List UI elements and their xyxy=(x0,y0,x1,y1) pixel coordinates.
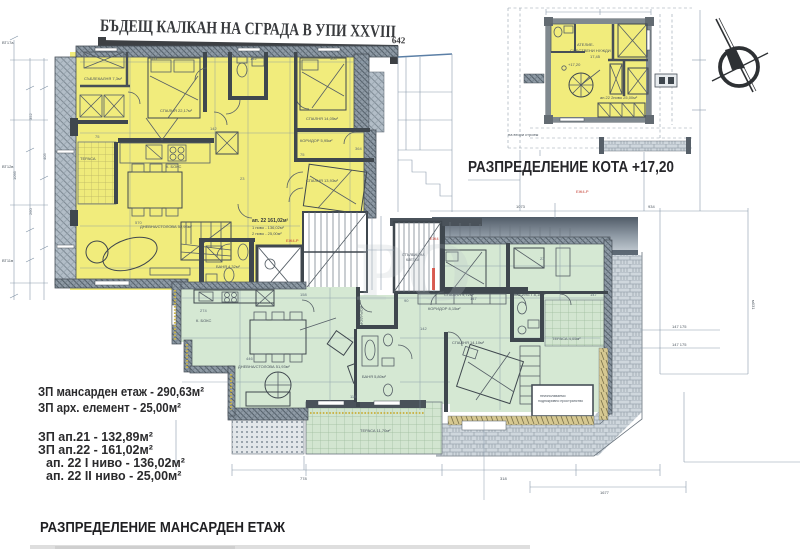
svg-text:75: 75 xyxy=(95,134,100,139)
svg-text:на втори строеж: на втори строеж xyxy=(508,132,539,137)
svg-text:РАЗПРЕДЕЛЕНИЕ МАНСАРДЕН ЕТАЖ: РАЗПРЕДЕЛЕНИЕ МАНСАРДЕН ЕТАЖ xyxy=(40,520,286,536)
svg-text:К. БОКС: К. БОКС xyxy=(196,318,212,323)
svg-text:ТЕРАСА 4,05м²: ТЕРАСА 4,05м² xyxy=(552,336,581,341)
svg-text:142: 142 xyxy=(250,56,257,61)
svg-text:142: 142 xyxy=(420,326,427,331)
svg-text:ап. 22 161,02м²: ап. 22 161,02м² xyxy=(252,218,289,224)
svg-text:ЕЖ4-Р: ЕЖ4-Р xyxy=(576,189,589,194)
svg-text:ДНЕВНА/СТОЛОВА 52,93м²: ДНЕВНА/СТОЛОВА 52,93м² xyxy=(140,224,192,229)
svg-text:СПАЛНЯ 14,05м²: СПАЛНЯ 14,05м² xyxy=(306,116,339,121)
svg-text:1095: 1095 xyxy=(12,170,17,180)
svg-text:СПАЛНЯ 14,10м²: СПАЛНЯ 14,10м² xyxy=(452,340,485,345)
svg-text:СПАЛНЯ 22,17м²: СПАЛНЯ 22,17м² xyxy=(160,108,193,113)
svg-text:ВТ12в: ВТ12в xyxy=(2,164,13,169)
svg-text:642: 642 xyxy=(392,35,406,45)
svg-text:подпокривно пространство: подпокривно пространство xyxy=(538,399,583,403)
svg-text:СПАЛНЯ 13,93м²: СПАЛНЯ 13,93м² xyxy=(306,178,339,183)
svg-text:147: 147 xyxy=(590,292,597,297)
svg-text:АТЕЛИЕ-: АТЕЛИЕ- xyxy=(577,42,595,47)
svg-text:17,45: 17,45 xyxy=(590,54,601,59)
svg-text:147 175: 147 175 xyxy=(672,342,687,347)
svg-text:К. БОКС: К. БОКС xyxy=(166,164,182,169)
svg-text:ЗП мансарден етаж - 290,63м²: ЗП мансарден етаж - 290,63м² xyxy=(38,385,204,399)
svg-text:364: 364 xyxy=(355,146,362,151)
svg-text:778: 778 xyxy=(300,476,307,481)
svg-text:934: 934 xyxy=(648,204,655,209)
svg-text:1073: 1073 xyxy=(516,204,526,209)
svg-text:142: 142 xyxy=(210,126,217,131)
svg-text:ап.22 2ниво 25,00м²: ап.22 2ниво 25,00м² xyxy=(600,95,638,100)
svg-text:158: 158 xyxy=(300,292,307,297)
svg-text:БАНЯ 4,32м²: БАНЯ 4,32м² xyxy=(216,264,241,269)
svg-text:ЗП ап.22 - 161,02м²: ЗП ап.22 - 161,02м² xyxy=(38,443,153,457)
svg-text:570: 570 xyxy=(135,220,142,225)
svg-text:ЗП ап.21 - 132,89м²: ЗП ап.21 - 132,89м² xyxy=(38,430,153,444)
svg-text:274: 274 xyxy=(200,308,207,313)
svg-text:ВТ17а: ВТ17а xyxy=(2,40,14,45)
svg-text:1 ниво - 136,02м²: 1 ниво - 136,02м² xyxy=(252,225,285,230)
svg-text:ЗП арх. елемент - 25,00м²: ЗП арх. елемент - 25,00м² xyxy=(38,401,181,415)
svg-text:РАЗПРЕДЕЛЕНИЕ КОТА +17,20: РАЗПРЕДЕЛЕНИЕ КОТА +17,20 xyxy=(468,159,674,176)
svg-text:405: 405 xyxy=(42,153,47,160)
svg-text:352: 352 xyxy=(28,113,33,120)
svg-text:ап. 22 II ниво - 25,00м²: ап. 22 II ниво - 25,00м² xyxy=(46,469,181,483)
svg-text:ЕЖ4-Р: ЕЖ4-Р xyxy=(286,238,299,243)
svg-text:364: 364 xyxy=(330,56,337,61)
svg-text:СЪБЛЕКАЛНЯ 7,3м²: СЪБЛЕКАЛНЯ 7,3м² xyxy=(84,76,123,81)
svg-text:КОРИДОР 5,95м²: КОРИДОР 5,95м² xyxy=(300,138,333,143)
svg-text:БАНЯ 5,80м²: БАНЯ 5,80м² xyxy=(362,374,387,379)
svg-text:неизползваемо: неизползваемо xyxy=(540,394,566,398)
svg-text:75: 75 xyxy=(300,152,305,157)
svg-text:+17,20: +17,20 xyxy=(568,62,581,67)
svg-text:ап. 22 I ниво - 136,02м²: ап. 22 I ниво - 136,02м² xyxy=(46,456,185,470)
svg-text:СОБСТВЕНИ НУЖДИ: СОБСТВЕНИ НУЖДИ xyxy=(570,48,611,53)
svg-text:ТЕРАСА: ТЕРАСА xyxy=(80,156,96,161)
svg-text:23: 23 xyxy=(540,256,545,261)
svg-text:РО: РО xyxy=(355,225,473,319)
svg-text:2 ниво - 25,00м²: 2 ниво - 25,00м² xyxy=(252,231,282,236)
svg-text:118: 118 xyxy=(350,394,357,399)
svg-text:446: 446 xyxy=(246,356,253,361)
svg-text:ТЕРАСА 11,70м²: ТЕРАСА 11,70м² xyxy=(360,428,391,433)
svg-text:318: 318 xyxy=(500,476,507,481)
svg-text:ВТ11в: ВТ11в xyxy=(2,258,13,263)
svg-text:260: 260 xyxy=(28,208,33,215)
svg-text:147 175: 147 175 xyxy=(672,324,687,329)
svg-text:405: 405 xyxy=(150,56,157,61)
svg-text:23: 23 xyxy=(240,176,245,181)
svg-text:м031: м031 xyxy=(751,300,756,310)
svg-text:1677: 1677 xyxy=(600,490,610,495)
svg-text:ДНЕВНА/СТОЛОВА 51,93м²: ДНЕВНА/СТОЛОВА 51,93м² xyxy=(238,364,290,369)
